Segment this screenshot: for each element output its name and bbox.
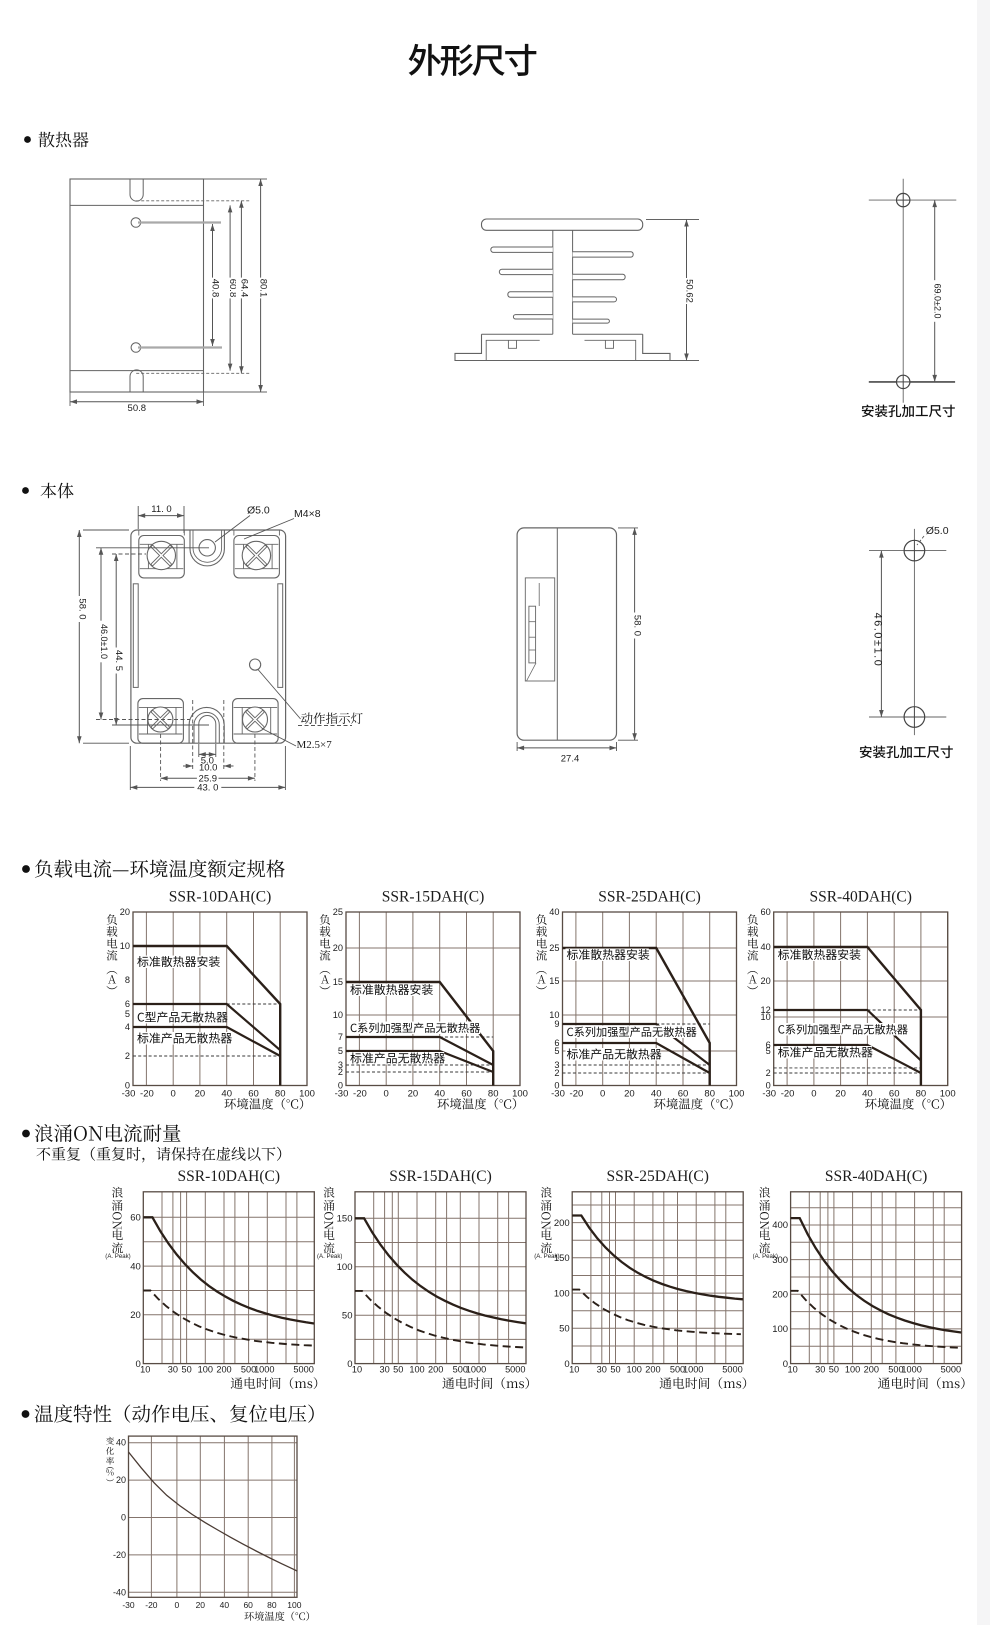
svg-text:200: 200: [772, 1290, 788, 1301]
svg-text:(A. Peak): (A. Peak): [105, 1253, 130, 1260]
svg-text:150: 150: [337, 1214, 353, 1225]
svg-text:100: 100: [287, 1600, 301, 1610]
svg-text:0: 0: [175, 1600, 180, 1610]
svg-text:44. 5: 44. 5: [113, 650, 124, 671]
svg-text:20: 20: [130, 1310, 141, 1321]
svg-text:5000: 5000: [293, 1365, 313, 1375]
svg-text:100: 100: [198, 1365, 213, 1375]
svg-text:5000: 5000: [722, 1365, 742, 1375]
svg-text:80: 80: [267, 1600, 277, 1610]
svg-text:-30: -30: [551, 1089, 565, 1100]
svg-text:30: 30: [815, 1365, 825, 1375]
svg-text:SSR-10DAH(C): SSR-10DAH(C): [169, 889, 271, 906]
svg-text:-30: -30: [762, 1089, 776, 1100]
svg-text:40: 40: [434, 1089, 445, 1100]
svg-text:0: 0: [121, 1513, 126, 1523]
svg-text:SSR-40DAH(C): SSR-40DAH(C): [809, 889, 911, 906]
svg-text:4: 4: [125, 1022, 130, 1032]
svg-text:20: 20: [408, 1089, 419, 1100]
svg-text:7: 7: [338, 1032, 343, 1042]
svg-text:30: 30: [597, 1365, 607, 1375]
svg-text:-20: -20: [570, 1089, 584, 1100]
svg-text:40: 40: [549, 907, 559, 917]
svg-text:0: 0: [811, 1089, 816, 1100]
svg-text:0: 0: [171, 1089, 176, 1100]
svg-text:25: 25: [549, 943, 559, 953]
svg-text:60: 60: [243, 1600, 253, 1610]
svg-text:SSR-25DAH(C): SSR-25DAH(C): [606, 1168, 708, 1185]
svg-text:1000: 1000: [683, 1365, 703, 1375]
svg-text:-30: -30: [122, 1600, 135, 1610]
svg-text:5: 5: [338, 1046, 343, 1056]
svg-text:1000: 1000: [466, 1365, 486, 1375]
svg-text:1000: 1000: [901, 1365, 921, 1375]
svg-text:-30: -30: [335, 1089, 349, 1100]
svg-text:11. 0: 11. 0: [151, 504, 171, 515]
svg-text:400: 400: [772, 1220, 788, 1231]
svg-text:SSR-10DAH(C): SSR-10DAH(C): [178, 1168, 280, 1185]
svg-text:60: 60: [760, 907, 770, 917]
svg-text:80.1: 80.1: [258, 279, 269, 298]
svg-text:M4×8: M4×8: [294, 508, 321, 520]
svg-text:SSR-25DAH(C): SSR-25DAH(C): [598, 889, 700, 906]
svg-text:100: 100: [409, 1365, 424, 1375]
svg-text:80: 80: [704, 1089, 715, 1100]
svg-text:(A. Peak): (A. Peak): [317, 1253, 342, 1260]
svg-text:M2.5×7: M2.5×7: [297, 739, 333, 751]
svg-text:10: 10: [760, 1012, 770, 1022]
svg-text:2: 2: [338, 1067, 343, 1077]
svg-text:50: 50: [181, 1365, 191, 1375]
svg-text:60: 60: [461, 1089, 472, 1100]
svg-text:(A. Peak): (A. Peak): [534, 1253, 559, 1260]
svg-text:40: 40: [220, 1600, 230, 1610]
svg-text:200: 200: [864, 1365, 879, 1375]
svg-text:200: 200: [554, 1218, 570, 1229]
svg-text:15: 15: [333, 977, 343, 987]
svg-text:-20: -20: [145, 1600, 158, 1610]
svg-text:20: 20: [116, 1475, 126, 1485]
svg-text:100: 100: [845, 1365, 860, 1375]
svg-text:-30: -30: [122, 1089, 136, 1100]
svg-text:5: 5: [766, 1046, 771, 1056]
svg-text:5000: 5000: [941, 1365, 961, 1375]
svg-text:-20: -20: [113, 1550, 126, 1560]
svg-text:100: 100: [729, 1089, 745, 1100]
svg-text:-20: -20: [140, 1089, 154, 1100]
svg-text:200: 200: [428, 1365, 443, 1375]
svg-text:20: 20: [333, 943, 343, 953]
svg-text:60: 60: [678, 1089, 689, 1100]
svg-text:100: 100: [299, 1089, 315, 1100]
svg-text:10: 10: [140, 1365, 150, 1375]
svg-text:20: 20: [195, 1089, 206, 1100]
svg-text:20: 20: [760, 976, 770, 986]
svg-text:50: 50: [559, 1324, 570, 1335]
svg-text:200: 200: [645, 1365, 660, 1375]
svg-text:SSR-40DAH(C): SSR-40DAH(C): [825, 1168, 927, 1185]
svg-text:5000: 5000: [505, 1365, 525, 1375]
svg-text:50: 50: [829, 1365, 839, 1375]
svg-text:30: 30: [379, 1365, 389, 1375]
svg-text:64.4: 64.4: [238, 279, 249, 298]
svg-text:40: 40: [221, 1089, 232, 1100]
svg-text:-20: -20: [781, 1089, 795, 1100]
svg-text:46.0±1.0: 46.0±1.0: [99, 624, 109, 659]
svg-text:43. 0: 43. 0: [197, 782, 218, 793]
svg-text:5: 5: [554, 1046, 559, 1056]
svg-text:-20: -20: [353, 1089, 367, 1100]
svg-text:60: 60: [889, 1089, 900, 1100]
svg-text:50.62: 50.62: [684, 279, 695, 303]
svg-text:40: 40: [651, 1089, 662, 1100]
svg-text:-40: -40: [113, 1587, 126, 1597]
svg-text:10: 10: [569, 1365, 579, 1375]
svg-text:20: 20: [120, 907, 130, 917]
svg-text:0: 0: [384, 1089, 389, 1100]
svg-text:20: 20: [624, 1089, 635, 1100]
svg-text:50: 50: [610, 1365, 620, 1375]
svg-text:69.0±2.0: 69.0±2.0: [933, 284, 943, 319]
svg-text:80: 80: [275, 1089, 286, 1100]
svg-text:100: 100: [512, 1089, 528, 1100]
svg-text:25: 25: [333, 907, 343, 917]
svg-text:58. 0: 58. 0: [632, 615, 643, 636]
svg-text:60: 60: [248, 1089, 259, 1100]
svg-text:50: 50: [342, 1310, 353, 1321]
svg-text:2: 2: [125, 1051, 130, 1061]
svg-text:50.8: 50.8: [128, 403, 147, 414]
svg-text:80: 80: [916, 1089, 927, 1100]
svg-text:6: 6: [125, 999, 130, 1009]
svg-text:100: 100: [940, 1089, 956, 1100]
svg-text:SSR-15DAH(C): SSR-15DAH(C): [382, 889, 484, 906]
svg-text:40: 40: [760, 942, 770, 952]
svg-text:2: 2: [766, 1068, 771, 1078]
svg-text:10: 10: [120, 941, 130, 951]
svg-text:40.8: 40.8: [210, 279, 221, 298]
svg-text:100: 100: [627, 1365, 642, 1375]
svg-text:100: 100: [337, 1262, 353, 1273]
svg-text:20: 20: [835, 1089, 846, 1100]
svg-text:40: 40: [862, 1089, 873, 1100]
svg-text:80: 80: [488, 1089, 499, 1100]
svg-text:20: 20: [196, 1600, 206, 1610]
svg-text:1000: 1000: [254, 1365, 274, 1375]
svg-text:SSR-15DAH(C): SSR-15DAH(C): [389, 1168, 491, 1185]
svg-text:Ø5.0: Ø5.0: [926, 525, 949, 537]
svg-text:9: 9: [554, 1019, 559, 1029]
svg-text:100: 100: [772, 1324, 788, 1335]
svg-text:10: 10: [333, 1010, 343, 1020]
svg-text:10: 10: [352, 1365, 362, 1375]
svg-text:60: 60: [130, 1213, 141, 1224]
svg-text:5: 5: [125, 1009, 130, 1019]
svg-text:27.4: 27.4: [561, 754, 580, 765]
svg-text:200: 200: [216, 1365, 231, 1375]
svg-text:40: 40: [116, 1438, 126, 1448]
svg-text:Ø5.0: Ø5.0: [247, 505, 270, 517]
svg-text:15: 15: [549, 976, 559, 986]
svg-text:(A. Peak): (A. Peak): [753, 1253, 778, 1260]
svg-text:10: 10: [787, 1365, 797, 1375]
svg-text:0: 0: [600, 1089, 605, 1100]
svg-text:100: 100: [554, 1288, 570, 1299]
svg-text:58. 0: 58. 0: [76, 598, 87, 619]
svg-text:10.0: 10.0: [199, 762, 218, 773]
svg-text:50: 50: [393, 1365, 403, 1375]
svg-text:40: 40: [130, 1261, 141, 1272]
svg-text:30: 30: [168, 1365, 178, 1375]
svg-text:2: 2: [554, 1068, 559, 1078]
svg-text:8: 8: [125, 975, 130, 985]
svg-text:46.0±1.0: 46.0±1.0: [872, 613, 884, 668]
